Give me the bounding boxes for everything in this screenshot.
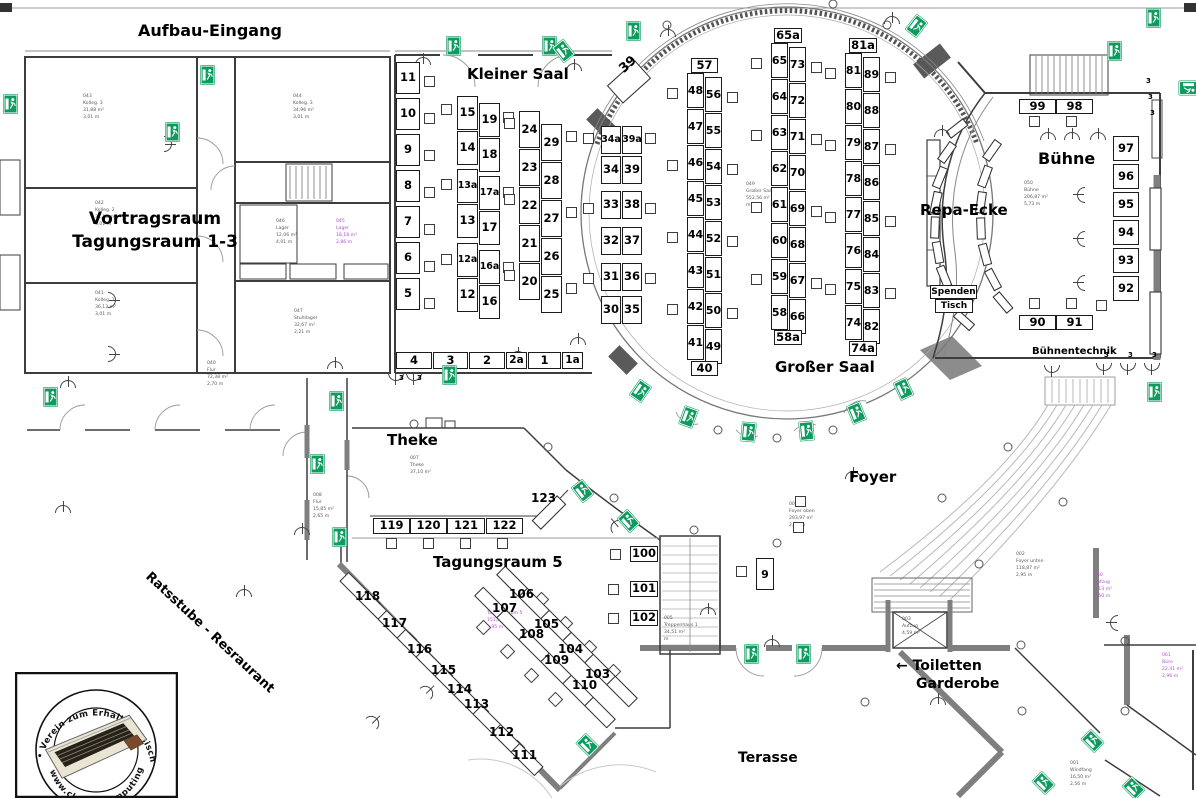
booth: 37 bbox=[622, 227, 642, 255]
room-info-line: 2,95 m bbox=[1016, 572, 1044, 579]
exit-sign-icon bbox=[798, 420, 815, 441]
running-man-glyph bbox=[200, 65, 215, 85]
booth: 10 bbox=[396, 98, 420, 130]
chair-square bbox=[751, 274, 762, 285]
booth: 19 bbox=[479, 103, 500, 137]
booth: 62 bbox=[771, 151, 788, 186]
chair-square bbox=[667, 88, 678, 99]
room-info-line: Flur bbox=[207, 367, 228, 374]
booth: 81a bbox=[849, 38, 877, 53]
chair-square bbox=[751, 202, 762, 213]
chair-square bbox=[727, 164, 738, 175]
room-info-line: 007 bbox=[410, 455, 431, 462]
running-man-glyph bbox=[744, 644, 759, 664]
title-buehne: Bühne bbox=[1038, 150, 1095, 168]
booth: 121 bbox=[447, 518, 485, 534]
floor-label: 114 bbox=[447, 683, 472, 696]
chair-square bbox=[504, 270, 515, 281]
booth: 63 bbox=[771, 115, 788, 150]
room-info-line: 2,56 m bbox=[1070, 781, 1092, 788]
title-vortragsraum-line1: Vortragsraum bbox=[60, 210, 250, 229]
booth: 12a bbox=[457, 243, 478, 277]
booth: 65a bbox=[774, 28, 802, 43]
booth: 34 bbox=[601, 156, 621, 184]
room-info-line: 4,59 m² bbox=[902, 630, 920, 637]
booth: 35 bbox=[622, 296, 642, 324]
room-info-line: 005 bbox=[664, 615, 698, 622]
booth: 122 bbox=[486, 518, 523, 534]
room-info-line: 3,01 m bbox=[95, 311, 116, 318]
room-info-line: Theke bbox=[410, 462, 431, 469]
room-info: 005Treppenhaus 134,51 m²m bbox=[664, 615, 698, 643]
chair-square bbox=[386, 538, 397, 549]
exit-sign-icon bbox=[744, 644, 759, 664]
room-info: 002Foyer unten118,87 m²2,95 m bbox=[1016, 551, 1044, 579]
chair-square bbox=[504, 194, 515, 205]
chair-square bbox=[1066, 116, 1077, 127]
chair-square bbox=[1029, 116, 1040, 127]
booth: 48 bbox=[687, 73, 704, 108]
booth: 65 bbox=[771, 43, 788, 78]
room-info-line: Foyer oben bbox=[789, 508, 815, 515]
title-terasse: Terasse bbox=[738, 751, 798, 766]
chair-square bbox=[1066, 298, 1077, 309]
booth: 78 bbox=[845, 161, 862, 196]
room-info-line: Bühne bbox=[1024, 187, 1048, 194]
booth: 9 bbox=[396, 134, 420, 166]
chair-square bbox=[424, 224, 435, 235]
room-info-line: Lager bbox=[276, 225, 297, 232]
booth: 21 bbox=[519, 225, 540, 262]
booth: 2 bbox=[469, 352, 505, 369]
room-info-line: 050 bbox=[1024, 180, 1048, 187]
room-info-line: 18,18 m² bbox=[336, 232, 357, 239]
room-info-line: 16,50 m² bbox=[1070, 774, 1092, 781]
room-info-line: 206,87 m² bbox=[1024, 194, 1048, 201]
booth: 85 bbox=[863, 201, 880, 236]
floor-label: 3 bbox=[1128, 352, 1133, 360]
room-info: 007Theke37,10 m² bbox=[410, 455, 431, 476]
booth: 15 bbox=[457, 96, 478, 130]
exit-sign-icon bbox=[740, 421, 757, 442]
title-aufbau-eingang: Aufbau-Eingang bbox=[138, 22, 282, 40]
booth: 25 bbox=[541, 276, 562, 313]
room-info: 003Aufzug4,59 m² bbox=[902, 616, 920, 637]
booth: 80 bbox=[845, 89, 862, 124]
running-man-glyph bbox=[329, 391, 344, 411]
booth: 74 bbox=[845, 305, 862, 340]
booth: 29 bbox=[541, 124, 562, 161]
booth: 26 bbox=[541, 238, 562, 275]
exit-sign-icon bbox=[626, 21, 641, 41]
exit-sign-icon bbox=[332, 527, 347, 547]
floor-label: 123 bbox=[531, 492, 556, 505]
chair-square bbox=[727, 92, 738, 103]
floor-plan: • Verein zum Erhalt klassischer Computer… bbox=[0, 0, 1196, 798]
chair-square bbox=[811, 134, 822, 145]
booth: 36 bbox=[622, 263, 642, 291]
booth: 41 bbox=[687, 325, 704, 360]
club-logo: • Verein zum Erhalt klassischer Computer… bbox=[15, 672, 178, 798]
booth: 1 bbox=[528, 352, 561, 369]
chair-square bbox=[793, 522, 804, 533]
booth: 70 bbox=[789, 155, 806, 190]
booth: 16 bbox=[479, 285, 500, 319]
exit-sign-icon bbox=[1179, 81, 1196, 96]
running-man-glyph bbox=[1179, 81, 1196, 96]
chair-square bbox=[811, 206, 822, 217]
chair-square bbox=[608, 613, 619, 624]
room-info: 046Lager12,06 m²4,01 m bbox=[276, 218, 297, 246]
booth: 86 bbox=[863, 165, 880, 200]
title-kleiner-saal: Kleiner Saal bbox=[467, 66, 569, 83]
booth: 5 bbox=[396, 278, 420, 310]
booth: 87 bbox=[863, 129, 880, 164]
table bbox=[976, 217, 986, 239]
booth: 1a bbox=[562, 352, 583, 369]
booth: 22 bbox=[519, 187, 540, 224]
booth: 7 bbox=[396, 206, 420, 238]
booth: 83 bbox=[863, 273, 880, 308]
booth: 46 bbox=[687, 145, 704, 180]
booth: 2a bbox=[506, 352, 527, 369]
chair-square bbox=[885, 216, 896, 227]
chair-square bbox=[645, 133, 656, 144]
chair-square bbox=[424, 150, 435, 161]
booth: 50 bbox=[705, 293, 722, 328]
floor-label: 106 bbox=[509, 588, 534, 601]
floor-label: 117 bbox=[382, 617, 407, 630]
exit-sign-icon bbox=[1146, 8, 1161, 28]
room-info-line: 15,85 m² bbox=[313, 506, 334, 513]
running-man-glyph bbox=[798, 420, 815, 441]
chair-square bbox=[751, 130, 762, 141]
chair-square bbox=[811, 62, 822, 73]
room-info-line: Foyer unten bbox=[1016, 558, 1044, 565]
booth: 39 bbox=[622, 156, 642, 184]
booth: 97 bbox=[1113, 136, 1139, 161]
chair-square bbox=[885, 288, 896, 299]
floor-label: 107 bbox=[492, 602, 517, 615]
room-info-line: 2,86 m bbox=[336, 239, 357, 246]
booth: 23 bbox=[519, 149, 540, 186]
title-buehnentechnik: Bühnentechnik bbox=[1032, 346, 1117, 357]
chair-square bbox=[583, 203, 594, 214]
room-info-line: 049 bbox=[746, 181, 773, 188]
booth: 54 bbox=[705, 149, 722, 184]
chair-square bbox=[795, 496, 806, 507]
room-info-line: 043 bbox=[83, 93, 104, 100]
exit-sign-icon bbox=[165, 122, 180, 142]
floor-label: 3 bbox=[1146, 78, 1151, 86]
title-vortragsraum-line2: Tagungsraum 1-3 bbox=[60, 233, 250, 252]
chair-square bbox=[751, 58, 762, 69]
room-info: 044Kolleg. 334,96 m²3,01 m bbox=[293, 93, 314, 121]
room-info-line: 003 bbox=[902, 616, 920, 623]
booth: 58a bbox=[774, 330, 802, 345]
room-info-line: 72,38 m² bbox=[207, 374, 228, 381]
booth: 14 bbox=[457, 131, 478, 165]
title-toiletten: ← Toiletten bbox=[896, 659, 982, 674]
booth: 30 bbox=[601, 296, 621, 324]
chair-square bbox=[667, 232, 678, 243]
exit-sign-icon bbox=[442, 365, 457, 385]
running-man-glyph bbox=[446, 36, 461, 56]
chair-square bbox=[811, 278, 822, 289]
booth: 75 bbox=[845, 269, 862, 304]
running-man-glyph bbox=[165, 122, 180, 142]
chair-square bbox=[424, 261, 435, 272]
running-man-glyph bbox=[796, 644, 811, 664]
chair-square bbox=[825, 140, 836, 151]
room-info-line: 2,50 m bbox=[1094, 593, 1112, 600]
running-man-glyph bbox=[332, 527, 347, 547]
room-info-line: 3,01 m bbox=[293, 114, 314, 121]
booth: 42 bbox=[687, 289, 704, 324]
room-info: 047Stuhllager32,67 m²2,21 m bbox=[294, 308, 318, 336]
exit-sign-icon bbox=[310, 454, 325, 474]
room-info-line: 2,21 m bbox=[294, 329, 318, 336]
booth: 44 bbox=[687, 217, 704, 252]
chair-square bbox=[667, 304, 678, 315]
room-info-line: Kolleg. 3 bbox=[83, 100, 104, 107]
booth: 58 bbox=[771, 295, 788, 330]
booth: 20 bbox=[519, 263, 540, 300]
floor-label: 109 bbox=[544, 654, 569, 667]
running-man-glyph bbox=[626, 21, 641, 41]
room-info-line: 002 bbox=[1016, 551, 1044, 558]
room-info-line: Lager bbox=[336, 225, 357, 232]
booth: 12 bbox=[457, 278, 478, 312]
booth: 99 bbox=[1019, 99, 1056, 114]
room-info: 008Flur15,85 m²2,65 m bbox=[313, 492, 334, 520]
booth: 45 bbox=[687, 181, 704, 216]
chair-square bbox=[441, 179, 452, 190]
room-info-line: 061 bbox=[1162, 652, 1183, 659]
floor-label: 113 bbox=[464, 698, 489, 711]
booth: 38 bbox=[622, 191, 642, 219]
floor-label: 108 bbox=[519, 628, 544, 641]
booth: 84 bbox=[863, 237, 880, 272]
room-info-line: m bbox=[664, 636, 698, 643]
booth: 43 bbox=[687, 253, 704, 288]
booth: 61 bbox=[771, 187, 788, 222]
chair-square bbox=[441, 104, 452, 115]
booth: 57 bbox=[691, 58, 718, 73]
floor-label: 116 bbox=[407, 643, 432, 656]
booth: 17a bbox=[479, 176, 500, 210]
room-info-line: 046 bbox=[276, 218, 297, 225]
booth: 91 bbox=[1056, 315, 1093, 330]
booth: 95 bbox=[1113, 192, 1139, 217]
chair-square bbox=[645, 203, 656, 214]
booth: 49 bbox=[705, 329, 722, 364]
booth: 94 bbox=[1113, 220, 1139, 245]
exit-sign-icon bbox=[329, 391, 344, 411]
booth: 92 bbox=[1113, 276, 1139, 301]
room-info-line: 047 bbox=[294, 308, 318, 315]
room-info-line: Aufzug bbox=[902, 623, 920, 630]
running-man-glyph bbox=[1146, 8, 1161, 28]
chair-square bbox=[424, 113, 435, 124]
room-info-line: 2,70 m bbox=[207, 381, 228, 388]
room-info-line: 3,13 m² bbox=[1094, 586, 1112, 593]
booth: 67 bbox=[789, 263, 806, 298]
booth: 77 bbox=[845, 197, 862, 232]
booth: 69 bbox=[789, 191, 806, 226]
booth: 33 bbox=[601, 191, 621, 219]
chair-square bbox=[424, 298, 435, 309]
room-info-line: Büro bbox=[1162, 659, 1183, 666]
running-man-glyph bbox=[1107, 41, 1122, 61]
booth: 79 bbox=[845, 125, 862, 160]
room-info-line: 22,41 m² bbox=[1162, 666, 1183, 673]
booth: 52 bbox=[705, 221, 722, 256]
chair-square bbox=[727, 308, 738, 319]
booth: 119 bbox=[373, 518, 410, 534]
chair-square bbox=[825, 212, 836, 223]
booth: 13a bbox=[457, 169, 478, 203]
chair-square bbox=[583, 133, 594, 144]
booth: 93 bbox=[1113, 248, 1139, 273]
floor-label: 115 bbox=[431, 664, 456, 677]
room-info-line: 2,96 m bbox=[1162, 673, 1183, 680]
chair-square bbox=[424, 187, 435, 198]
running-man-glyph bbox=[43, 387, 58, 407]
room-info-line: 042 bbox=[95, 200, 116, 207]
room-info-line: 045 bbox=[336, 218, 357, 225]
booth: 101 bbox=[630, 581, 658, 597]
room-info-line: 001 bbox=[1070, 760, 1092, 767]
booth: 66 bbox=[789, 299, 806, 334]
exit-sign-icon bbox=[200, 65, 215, 85]
booth: 40 bbox=[691, 361, 718, 376]
booth: 27 bbox=[541, 200, 562, 237]
booth: 56 bbox=[705, 77, 722, 112]
floor-label: 3 bbox=[1152, 352, 1157, 360]
title-repa-ecke: Repa-Ecke bbox=[920, 202, 1008, 219]
running-man-glyph bbox=[310, 454, 325, 474]
room-info: 060Aufzug3,13 m²2,50 m bbox=[1094, 572, 1112, 600]
exit-sign-icon bbox=[1147, 382, 1162, 402]
booth: 72 bbox=[789, 83, 806, 118]
booth: 89 bbox=[863, 57, 880, 92]
booth: 76 bbox=[845, 233, 862, 268]
title-garderobe: Garderobe bbox=[916, 677, 999, 692]
chair-square bbox=[566, 283, 577, 294]
booth: 51 bbox=[705, 257, 722, 292]
chair-square bbox=[423, 538, 434, 549]
room-info-line: 34,96 m² bbox=[293, 107, 314, 114]
room-info: 043Kolleg. 331,88 m²3,01 m bbox=[83, 93, 104, 121]
booth: 34a bbox=[601, 126, 621, 154]
booth: 90 bbox=[1019, 315, 1056, 330]
booth: 4 bbox=[396, 352, 432, 369]
chair-square bbox=[645, 273, 656, 284]
running-man-glyph bbox=[3, 94, 18, 114]
chair-square bbox=[424, 76, 435, 87]
chair-square bbox=[825, 284, 836, 295]
room-info-line: Großer Saal bbox=[746, 188, 773, 195]
booth: 68 bbox=[789, 227, 806, 262]
title-grosser-saal: Großer Saal bbox=[775, 359, 875, 376]
chair-square bbox=[727, 236, 738, 247]
chair-square bbox=[885, 72, 896, 83]
chair-square bbox=[825, 68, 836, 79]
booth: 39a bbox=[622, 126, 642, 154]
running-man-glyph bbox=[442, 365, 457, 385]
chair-square bbox=[667, 160, 678, 171]
chair-square bbox=[608, 584, 619, 595]
booth: 47 bbox=[687, 109, 704, 144]
booth: 24 bbox=[519, 111, 540, 148]
exit-sign-icon bbox=[796, 644, 811, 664]
floor-label: 3 bbox=[1150, 110, 1155, 118]
floor-label: 112 bbox=[489, 726, 514, 739]
floor-label: 118 bbox=[355, 590, 380, 603]
booth: 82 bbox=[863, 309, 880, 344]
booth: 55 bbox=[705, 113, 722, 148]
chair-square bbox=[504, 118, 515, 129]
chair-square bbox=[566, 207, 577, 218]
chair-square bbox=[460, 538, 471, 549]
booth: 31 bbox=[601, 263, 621, 291]
room-info-line: Windfang bbox=[1070, 767, 1092, 774]
room-info-line: 118,87 m² bbox=[1016, 565, 1044, 572]
room-info-line: 044 bbox=[293, 93, 314, 100]
room-info: 040Flur72,38 m²2,70 m bbox=[207, 360, 228, 388]
room-info-line: 32,67 m² bbox=[294, 322, 318, 329]
booth: 74a bbox=[849, 341, 877, 356]
booth: Spenden bbox=[930, 285, 977, 299]
booth: 98 bbox=[1056, 99, 1093, 114]
booth: Tisch bbox=[935, 299, 973, 313]
booth: 16a bbox=[479, 250, 500, 284]
booth: 32 bbox=[601, 227, 621, 255]
chair-square bbox=[1029, 298, 1040, 309]
room-info-line: Kolleg. 3 bbox=[293, 100, 314, 107]
room-info-line: 008 bbox=[313, 492, 334, 499]
room-info-line: 3,01 m bbox=[83, 114, 104, 121]
room-info-line: 4,01 m bbox=[276, 239, 297, 246]
chair-square bbox=[610, 549, 621, 560]
chair-square bbox=[497, 538, 508, 549]
room-info: 061Büro22,41 m²2,96 m bbox=[1162, 652, 1183, 680]
room-info: 050Bühne206,87 m²5,73 m bbox=[1024, 180, 1048, 208]
booth: 73 bbox=[789, 47, 806, 82]
title-tagungsraum-5: Tagungsraum 5 bbox=[433, 554, 563, 571]
room-info-line: 040 bbox=[207, 360, 228, 367]
title-foyer: Foyer bbox=[849, 469, 896, 486]
room-info-line: 2,65 m bbox=[313, 513, 334, 520]
chair-square bbox=[736, 566, 747, 577]
booth: 64 bbox=[771, 79, 788, 114]
running-man-glyph bbox=[740, 421, 757, 442]
room-info: 045Lager18,18 m²2,86 m bbox=[336, 218, 357, 246]
booth: 11 bbox=[396, 62, 420, 94]
booth: 9 bbox=[756, 558, 774, 590]
room-info-line: Stuhllager bbox=[294, 315, 318, 322]
table bbox=[930, 216, 940, 238]
room-info-line: 060 bbox=[1094, 572, 1112, 579]
floor-label: 3 bbox=[399, 375, 404, 383]
booth: 120 bbox=[410, 518, 447, 534]
title-theke: Theke bbox=[387, 432, 438, 449]
room-info-line: 31,88 m² bbox=[83, 107, 104, 114]
chair-square bbox=[441, 254, 452, 265]
booth: 59 bbox=[771, 259, 788, 294]
floor-label: 111 bbox=[512, 749, 537, 762]
